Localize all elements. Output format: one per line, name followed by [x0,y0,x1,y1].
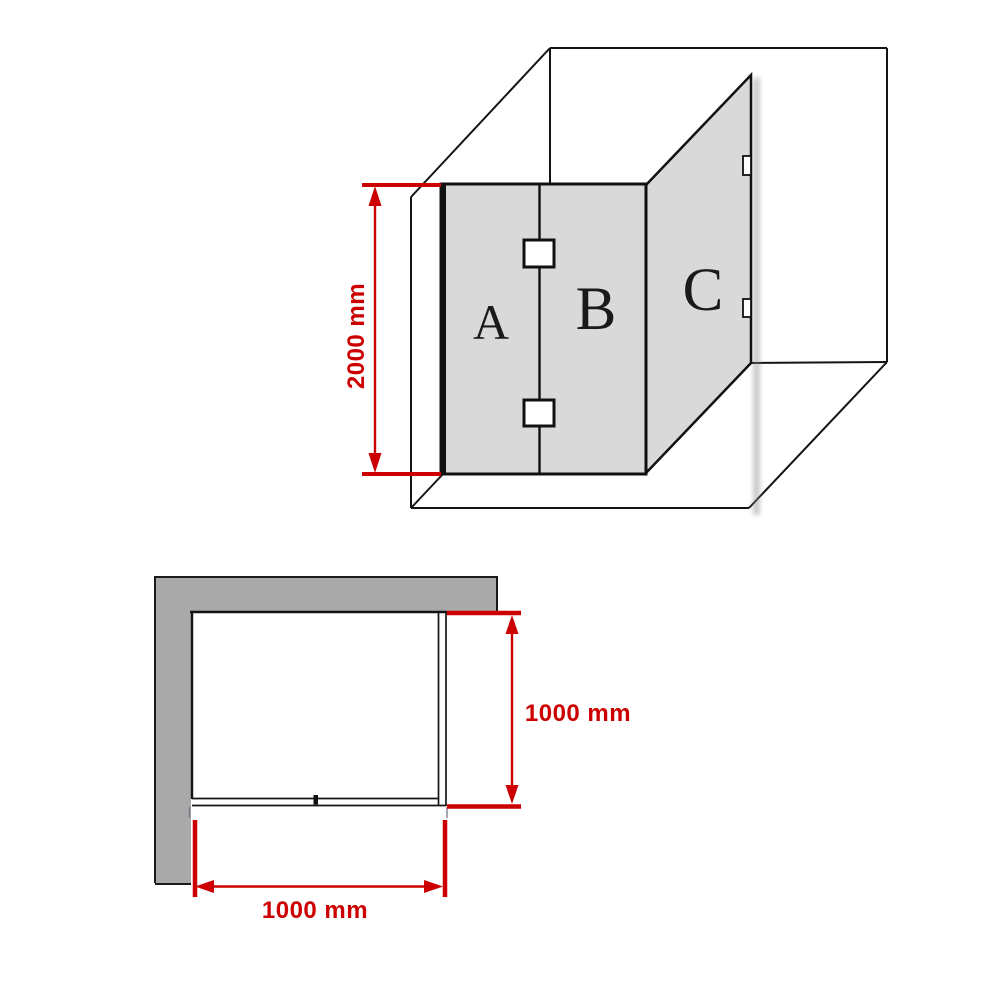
depth-dim-label: 1000 mm [525,700,631,728]
clamp-bottom [743,299,751,317]
depth-dim-arrow-up [506,615,519,634]
panel-c-label: C [683,256,724,326]
diagram-canvas [0,0,1000,1000]
height-dim-arrow-down [369,453,382,473]
hinge-bottom [524,400,554,426]
hinge-top [524,240,554,267]
height-dim-label: 2000 mm [343,283,371,389]
panel-b-label: B [576,275,617,345]
panel-c-shadow [753,78,760,515]
clamp-top [743,156,751,175]
plan-view [155,577,521,897]
width-dim-label: 1000 mm [262,897,368,925]
room-floor-back-edge [751,362,887,363]
width-dim-arrow-left [195,880,214,893]
height-dim-arrow-up [369,186,382,206]
room-floor-right-edge [749,362,887,508]
iso-view [362,48,887,515]
room-floor-left-corner-edge [411,474,443,508]
depth-dim-arrow-down [506,785,519,804]
panel-a-label: A [473,293,509,351]
width-dim-arrow-right [424,880,443,893]
glass-joint-tick [314,795,319,805]
product-dimension-diagram: A B C 2000 mm 1000 mm 1000 mm [0,0,1000,1000]
shower-tray-area [191,611,447,806]
room-left-wall-top-edge [411,48,550,197]
